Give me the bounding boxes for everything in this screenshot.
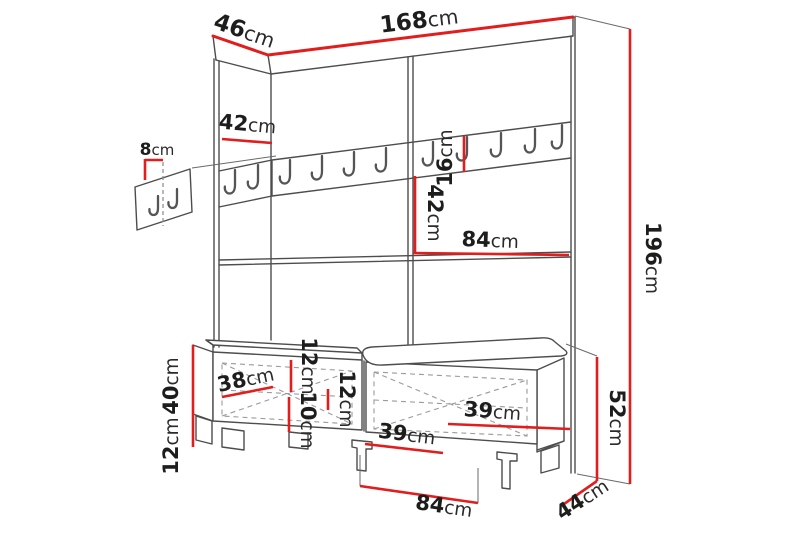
coat-hook-icon [376,148,386,172]
dim-line-left-section [222,139,272,143]
bench-leg [497,452,517,489]
right-bench-side [537,358,564,452]
dim-bench-height-label: 52cm [605,389,629,446]
left-edge [214,59,219,347]
coat-hook-icon [344,152,354,176]
diagram-canvas: 168cm 46cm 42cm 8cm 16cm 42cm 84cm 196cm… [0,0,800,533]
coat-hook-icon [312,156,322,180]
dim-middle-height-label: 42cm [423,184,447,241]
dim-bench-width-label: 84cm [414,490,474,522]
coat-hook-icon [491,133,501,157]
dim-gap-label: 10cm [296,391,320,448]
coat-hook-icon [225,170,235,194]
bench-cushion [363,338,567,365]
dim-right-section-label: 84cm [461,227,519,253]
left-bench-side [193,345,213,421]
coat-hook-icon [457,137,467,161]
dim-cushion-label: 12cm [297,337,321,394]
bench-leg [222,428,244,450]
right-edge [571,17,575,473]
middle-divider [408,56,413,350]
dim-line-hook-spacing [145,159,163,180]
bench-leg [196,416,212,444]
dim-left-section-label: 42cm [218,110,277,139]
coat-hook-icon [423,142,433,166]
hook-panel-detail [135,156,276,230]
dim-bench-leg-label: 12cm [159,417,183,474]
dim-total-height-label: 196cm [641,222,665,294]
coat-hook-icon [248,165,258,189]
dim-rail-height-label: 16cm [433,129,457,186]
dim-bench-body-label: 40cm [159,357,183,414]
left-bench-seat [206,340,362,353]
dim-hook-spacing-label: 8cm [140,140,175,160]
coat-hook-icon [552,125,562,149]
dim-cushion-right-label: 12cm [335,370,359,427]
coat-hook-icon [525,129,535,153]
dim-bench-depth-label: 44cm [552,473,613,524]
furniture-dimension-diagram: 168cm 46cm 42cm 8cm 16cm 42cm 84cm 196cm… [0,0,800,533]
coat-hook-icon [280,160,290,184]
